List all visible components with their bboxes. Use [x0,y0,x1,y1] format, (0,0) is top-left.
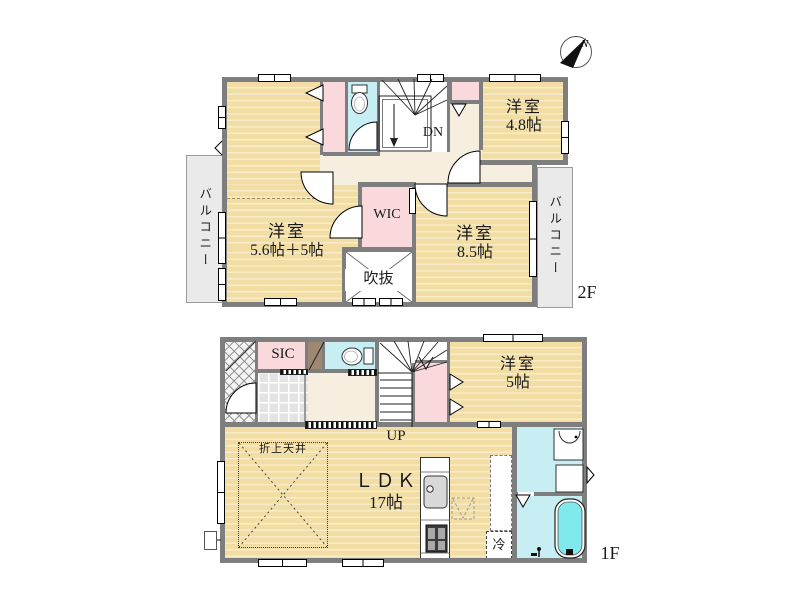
window [258,559,307,567]
wall-segment [345,82,348,154]
genkan-tile [258,372,308,422]
sic-floor [258,340,308,370]
window [352,298,376,306]
sliding-door [477,421,501,428]
floorplan-canvas: N [0,0,800,600]
toilet-2f-floor [348,82,377,152]
kitchen-back-counter [490,455,512,531]
wall-segment [256,369,280,373]
wall-segment [415,360,447,363]
window [561,121,569,154]
compass-circle [561,37,592,68]
threshold [280,369,308,375]
compass-north-label: N [580,38,589,50]
floor1-text: 1F [600,543,619,564]
stairs-2f-area [380,82,447,152]
window [258,74,291,82]
wall-segment [412,363,415,422]
wall-segment [323,152,380,156]
wall-segment [449,100,480,104]
bedroom-5-floor [450,342,582,422]
floor2-label: 2F [570,280,604,304]
window [489,74,541,82]
window [417,74,444,82]
bathroom-floor [517,496,582,558]
wall-segment [582,337,587,563]
wall-segment [449,82,452,102]
wall-segment [377,82,380,154]
window [264,298,297,306]
wall-segment [304,374,306,422]
closet-2f-left [323,82,345,153]
wall-segment [306,369,325,373]
bedroom-85-floor [415,187,532,302]
wall-segment [305,340,308,372]
washroom-floor [517,427,582,492]
bedroom-main-floor-b [227,185,358,247]
threshold [348,369,377,376]
wall-segment [342,247,416,252]
wall-segment [322,340,325,372]
wall-segment [342,247,346,307]
bedroom-main-floor-c [227,247,342,302]
meter-box [204,531,217,550]
wall-segment [479,160,568,165]
wall-segment [375,340,379,427]
window [218,106,226,129]
wall-segment [220,337,225,563]
wall-segment [375,422,450,427]
closet-48 [452,82,479,100]
wall-segment [512,492,518,496]
window [218,212,226,264]
wic-door-leaf [409,188,416,214]
void-area [346,252,412,302]
window [483,334,543,342]
wall-segment [447,340,450,425]
balcony-right [537,167,573,308]
entrance-porch [225,340,256,422]
wall-segment [255,340,258,424]
wall-segment [320,82,323,155]
kitchen-counter [420,457,450,559]
coffered-ceiling-box [238,442,328,548]
compass: N [560,37,592,69]
wall-segment [534,492,587,496]
wall-segment [358,182,415,187]
wall-segment [325,369,348,373]
bedroom-48-floor [482,82,563,160]
window [379,298,403,306]
compass-needle-icon [560,38,586,68]
floor1-label: 1F [593,541,627,565]
toilet-1f-floor [325,340,378,370]
hall-1f-floor [308,372,378,422]
wic-floor [362,187,412,247]
wall-segment [447,182,537,187]
window [529,201,537,277]
window [342,559,384,567]
wall-segment [447,422,587,427]
wall-segment [479,82,483,150]
window [218,268,226,301]
threshold [305,421,377,429]
floor2-text: 2F [577,282,596,303]
closet-5 [415,363,447,422]
room-divider-dashed [227,198,320,199]
wall-segment [358,182,362,252]
refrigerator-box [486,531,512,559]
window [217,461,225,524]
wall-segment [220,422,305,427]
